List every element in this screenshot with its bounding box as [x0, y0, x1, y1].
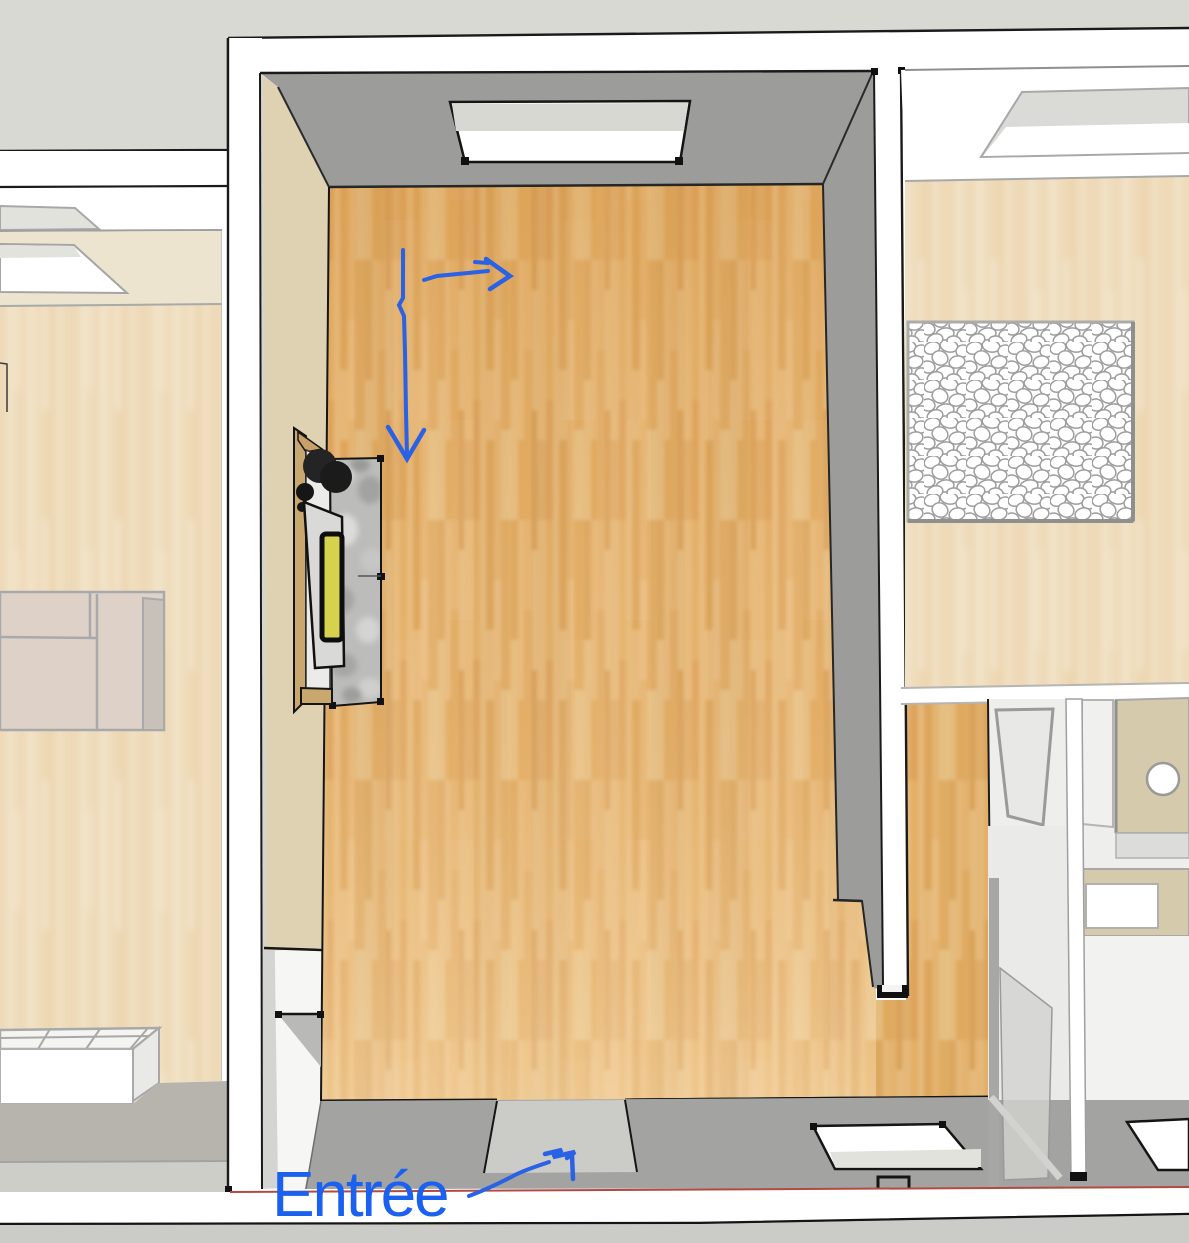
svg-text:Entrée: Entrée — [272, 1158, 447, 1230]
